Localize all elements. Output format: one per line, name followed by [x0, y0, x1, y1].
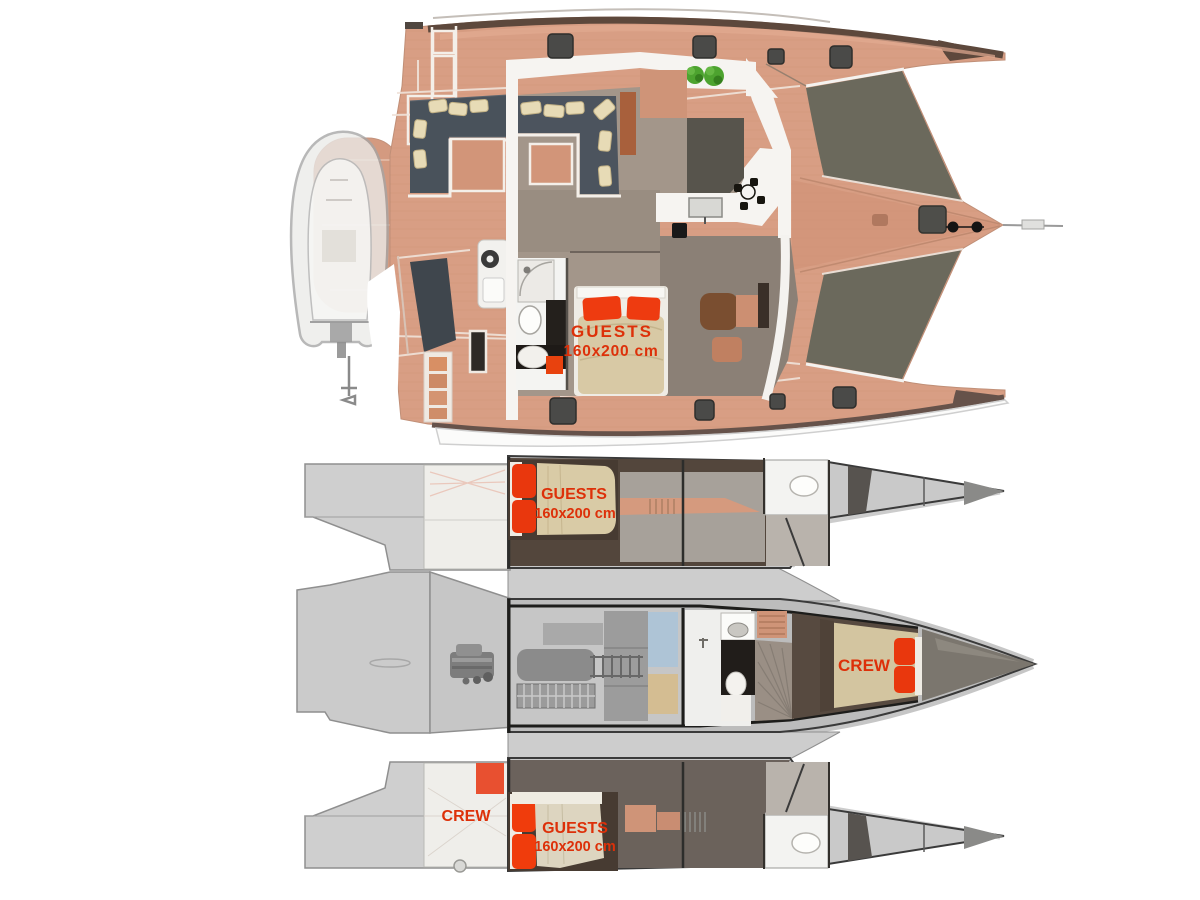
- svg-text:GUESTS: GUESTS: [542, 820, 608, 837]
- svg-text:160x200 cm: 160x200 cm: [563, 343, 658, 360]
- svg-text:CREW: CREW: [442, 808, 492, 825]
- svg-text:160x200 cm: 160x200 cm: [534, 839, 615, 855]
- svg-text:GUESTS: GUESTS: [571, 322, 653, 341]
- svg-text:CREW: CREW: [838, 656, 891, 675]
- svg-text:160x200 cm: 160x200 cm: [534, 506, 615, 522]
- svg-text:GUESTS: GUESTS: [541, 486, 607, 503]
